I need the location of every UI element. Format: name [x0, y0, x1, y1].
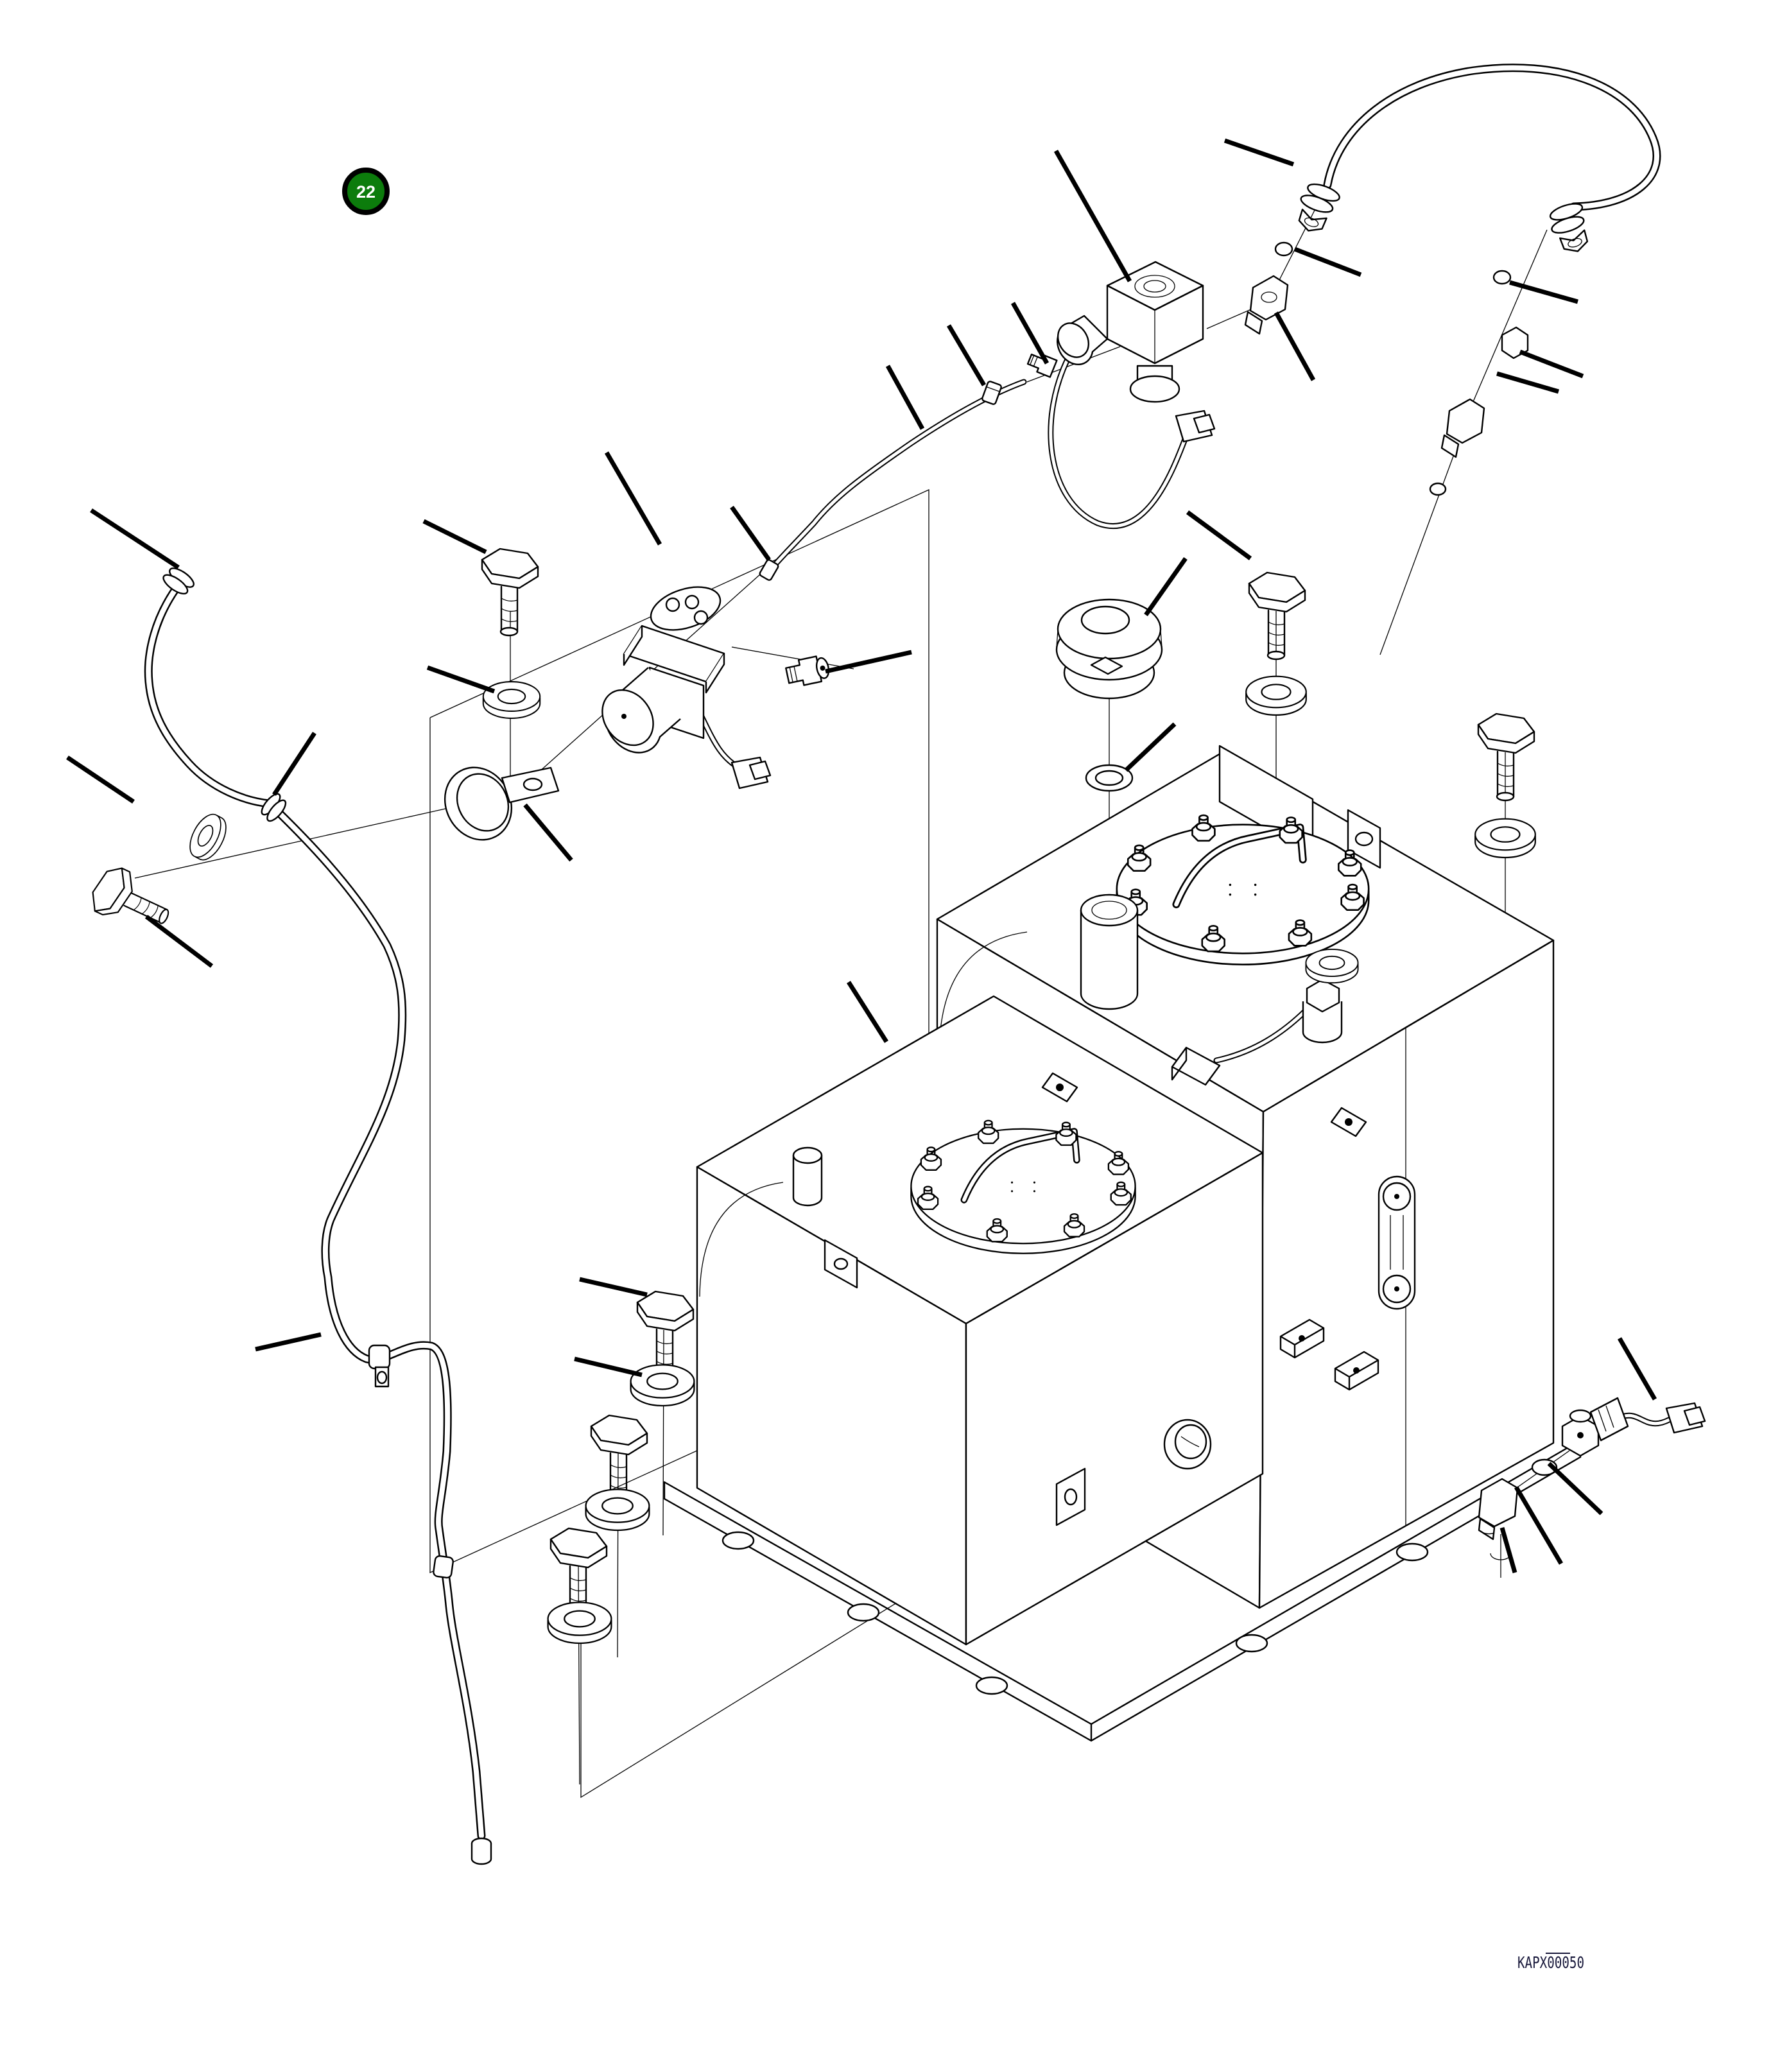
check-valve-fitting	[785, 654, 831, 688]
return-hose-assembly	[148, 564, 491, 1864]
washer	[483, 682, 540, 718]
solenoid-valve	[1051, 262, 1214, 526]
hose-end-fitting-left	[1292, 180, 1342, 237]
callout-badge[interactable]: 22	[345, 170, 387, 212]
tank-body	[664, 746, 1580, 1741]
hose-clamp-assembly	[433, 549, 558, 852]
badge-number: 22	[356, 182, 376, 202]
drawing-code-text: KAPX00050	[1517, 1953, 1584, 1972]
vent-hose-assembly	[1245, 68, 1657, 495]
front-port-cap	[1164, 1420, 1211, 1469]
fuel-pump	[592, 579, 831, 788]
filler-neck	[1081, 895, 1137, 1009]
hose-fitting	[160, 564, 196, 598]
parts-diagram-page: 22 KAPX00050	[0, 0, 1780, 2072]
hose-end-cap	[472, 1838, 491, 1864]
o-ring-small	[1494, 271, 1510, 284]
mounting-bolts	[548, 1291, 695, 1643]
exploded-parts-diagram: 22 KAPX00050	[0, 0, 1780, 2072]
hose-clip	[433, 1555, 453, 1578]
drawing-code: KAPX00050	[1517, 1953, 1584, 1972]
supply-hose	[759, 351, 1057, 582]
sight-gauge	[1379, 1177, 1415, 1309]
hose-clip	[369, 1345, 390, 1386]
left-bolt-washer	[86, 809, 232, 940]
elbow-fitting-right	[1430, 399, 1484, 495]
elbow-fitting	[1479, 1479, 1517, 1539]
vent-stub	[793, 1148, 822, 1205]
o-ring-small	[1275, 243, 1292, 255]
